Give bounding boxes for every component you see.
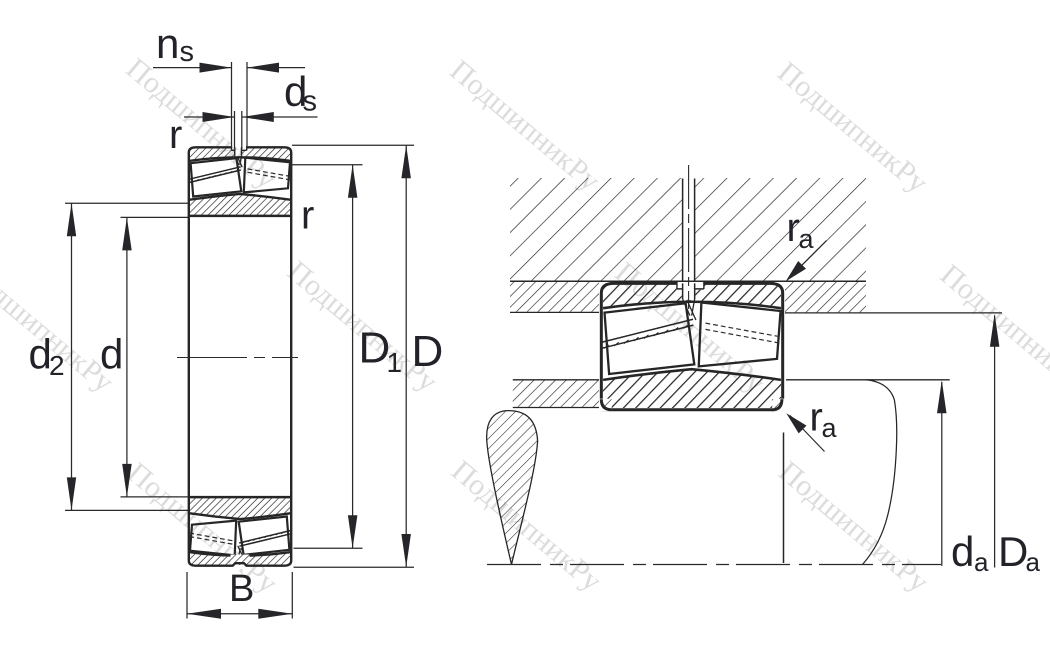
svg-text:r: r: [169, 113, 182, 157]
svg-text:d: d: [951, 528, 974, 575]
svg-text:2: 2: [49, 350, 65, 381]
svg-text:D: D: [412, 327, 444, 376]
svg-text:D: D: [998, 528, 1028, 575]
svg-text:a: a: [799, 224, 815, 254]
svg-text:a: a: [1026, 547, 1041, 577]
svg-text:a: a: [974, 547, 989, 577]
svg-text:1: 1: [387, 347, 403, 378]
svg-text:r: r: [301, 194, 314, 238]
svg-text:d: d: [100, 331, 123, 378]
svg-text:B: B: [229, 568, 254, 610]
svg-text:a: a: [822, 413, 838, 443]
svg-text:D: D: [359, 324, 391, 373]
svg-text:s: s: [303, 86, 318, 118]
svg-text:s: s: [180, 36, 195, 68]
svg-text:n: n: [156, 20, 179, 67]
